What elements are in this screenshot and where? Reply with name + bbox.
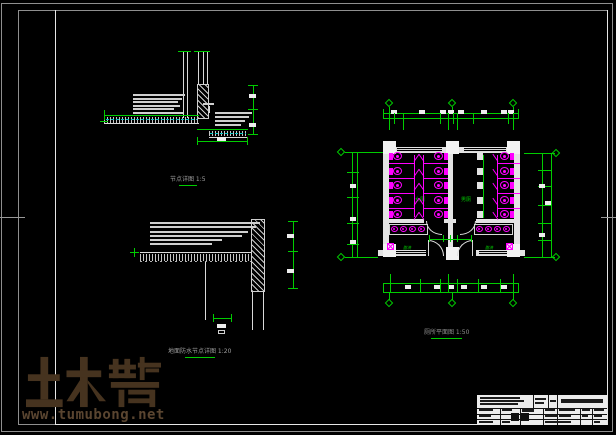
title-block-line bbox=[580, 408, 581, 425]
dim-text bbox=[501, 110, 507, 114]
dim-tick bbox=[347, 197, 359, 198]
dim-tick bbox=[518, 283, 519, 293]
d2-dim-line bbox=[213, 318, 232, 319]
wash-dim-tick bbox=[471, 235, 472, 242]
dim-tick bbox=[394, 113, 395, 124]
title-block-line bbox=[533, 395, 534, 408]
toilet-tank bbox=[444, 211, 448, 218]
tumubang-logo bbox=[26, 356, 161, 408]
urinal bbox=[477, 168, 483, 175]
title-block-text bbox=[502, 409, 512, 411]
title-underline bbox=[179, 185, 197, 186]
d1-leader bbox=[209, 106, 210, 113]
d1-dim-text bbox=[217, 137, 226, 141]
dim-text bbox=[501, 285, 507, 289]
title-block-text bbox=[479, 421, 493, 423]
dim-tick bbox=[518, 109, 519, 119]
title-block-line bbox=[500, 408, 501, 425]
toilet-bowl-dot bbox=[503, 199, 506, 202]
wash-dim-tick bbox=[443, 235, 444, 242]
stall-partition bbox=[423, 178, 448, 179]
d2-dim-tick bbox=[231, 314, 232, 322]
d2-dim-text bbox=[287, 269, 294, 273]
detail1-title: 节点详图 1:5 bbox=[170, 176, 206, 183]
dim-tick bbox=[513, 113, 514, 130]
title-block-line bbox=[557, 395, 558, 408]
d1-dim-line bbox=[253, 85, 254, 135]
dim-text bbox=[458, 110, 464, 114]
title-block-text bbox=[559, 421, 571, 423]
d1-wall-line bbox=[207, 52, 208, 85]
dim-stem bbox=[345, 152, 352, 153]
dim-tick bbox=[383, 283, 384, 293]
title-block-line bbox=[592, 408, 593, 425]
toilet-bowl-dot bbox=[396, 213, 399, 216]
sink-drain-dot bbox=[420, 228, 422, 230]
d1-tick bbox=[104, 110, 105, 120]
dim-tick bbox=[538, 223, 552, 224]
d1-tick bbox=[178, 51, 191, 52]
dim-tick bbox=[389, 113, 390, 130]
title-block-text bbox=[594, 415, 602, 417]
title-block-line bbox=[548, 395, 549, 408]
title-block-text bbox=[545, 415, 557, 417]
title-block-text bbox=[480, 403, 518, 405]
urinal bbox=[477, 211, 483, 218]
d2-wall-hatch bbox=[251, 219, 265, 292]
sink-drain-dot bbox=[487, 228, 489, 230]
d2-note-line bbox=[150, 235, 242, 237]
urinal bbox=[477, 153, 483, 160]
title-block-text bbox=[582, 409, 590, 411]
d1-note-line bbox=[133, 94, 185, 96]
toilet-tank bbox=[444, 153, 448, 160]
title-block-line bbox=[477, 419, 607, 420]
dim-text bbox=[461, 285, 467, 289]
title-block-text bbox=[594, 409, 604, 411]
floor-drain bbox=[387, 243, 394, 250]
dim-tick bbox=[440, 113, 441, 124]
dim-tick bbox=[448, 274, 449, 292]
title-block-text bbox=[550, 400, 556, 402]
toilet-bowl-dot bbox=[437, 155, 440, 158]
d1-lower-floor-bottom bbox=[209, 137, 247, 138]
d1-dim-tick bbox=[247, 137, 248, 145]
toilet-tank bbox=[444, 168, 448, 175]
dim-text bbox=[350, 217, 356, 221]
watermark: www.tumubong.net bbox=[0, 336, 200, 431]
toilet-bowl-dot bbox=[437, 170, 440, 173]
dim-tick bbox=[538, 170, 552, 171]
d1-note-line bbox=[215, 112, 252, 114]
d2-dim-line bbox=[293, 221, 294, 289]
dim-tick bbox=[508, 113, 509, 124]
d1-note-line bbox=[215, 124, 241, 126]
d2-wall-line bbox=[252, 292, 253, 330]
watermark-url: www.tumubong.net bbox=[22, 407, 165, 423]
floor-drain bbox=[506, 243, 513, 250]
title-block-text bbox=[594, 421, 600, 423]
plan-window-line bbox=[464, 149, 506, 150]
dim-tick bbox=[347, 244, 359, 245]
toilet-bowl-dot bbox=[437, 199, 440, 202]
dim-line bbox=[383, 292, 519, 293]
plan-window-line bbox=[396, 254, 426, 255]
stall-partition bbox=[423, 163, 448, 164]
d2-note-line bbox=[150, 243, 212, 245]
dim-tick bbox=[457, 279, 458, 292]
d2-note-line bbox=[150, 231, 248, 233]
plan-window-line bbox=[464, 151, 506, 152]
d1-wall-line bbox=[183, 52, 184, 118]
d2-floor-top-line bbox=[140, 252, 252, 253]
dim-text bbox=[539, 184, 545, 188]
d2-note-line bbox=[150, 222, 260, 224]
dim-tick bbox=[390, 274, 391, 292]
toilet-tank bbox=[444, 197, 448, 204]
d1-note-line bbox=[133, 105, 180, 107]
d2-note-line bbox=[150, 226, 256, 228]
dim-text bbox=[545, 201, 551, 205]
d1-note-line bbox=[133, 101, 178, 103]
d2-dim-tick bbox=[288, 288, 298, 289]
stall-partition bbox=[389, 163, 414, 164]
stall-partition bbox=[389, 178, 414, 179]
toilet-bowl-dot bbox=[396, 170, 399, 173]
title-block-text bbox=[535, 402, 544, 404]
door-leaf bbox=[428, 240, 429, 256]
cad-drawing-canvas: 节点详图 1:5 地面防水节点详图 1:20 厕所平面图 1:50 女厕 男厕 … bbox=[0, 0, 616, 435]
d1-dim-tick bbox=[197, 137, 198, 145]
dim-text bbox=[539, 233, 545, 237]
d2-note-line bbox=[150, 239, 222, 241]
title-block-text bbox=[479, 415, 491, 417]
centering-mark-right bbox=[601, 217, 616, 218]
dim-text bbox=[481, 285, 487, 289]
d2-symbol bbox=[218, 330, 225, 334]
d1-dim-tick bbox=[248, 109, 258, 110]
title-block-text bbox=[561, 399, 603, 403]
dim-tick bbox=[457, 113, 458, 130]
toilet-bowl-dot bbox=[503, 155, 506, 158]
d1-note-line bbox=[133, 98, 182, 100]
dim-tick bbox=[347, 223, 359, 224]
d1-wall-line bbox=[187, 52, 188, 118]
sink-drain-dot bbox=[505, 228, 507, 230]
title-block-stamp bbox=[521, 413, 529, 421]
dim-tick bbox=[500, 279, 501, 292]
title-block-text bbox=[502, 421, 510, 423]
d1-note-line bbox=[215, 116, 249, 118]
dim-tick bbox=[524, 257, 555, 258]
dim-text bbox=[350, 240, 356, 244]
sink-drain-dot bbox=[402, 228, 404, 230]
dim-tick bbox=[478, 279, 479, 292]
title-underline bbox=[431, 338, 462, 339]
toilet-bowl-dot bbox=[437, 184, 440, 187]
dim-tick bbox=[453, 113, 454, 124]
plan-window-line bbox=[479, 254, 509, 255]
stall-partition bbox=[497, 208, 520, 209]
dim-tick bbox=[524, 153, 555, 154]
toilet-bowl-dot bbox=[503, 184, 506, 187]
dim-stem bbox=[345, 257, 352, 258]
sink-drain-dot bbox=[393, 228, 395, 230]
title-block-text bbox=[522, 409, 534, 412]
d1-dim-text bbox=[249, 123, 256, 127]
dim-tick bbox=[473, 113, 474, 124]
d1-tick bbox=[100, 121, 108, 122]
d2-floor-broken-edge bbox=[140, 261, 252, 262]
d2-wall-line bbox=[263, 292, 264, 330]
urinal-screen-line bbox=[483, 155, 484, 218]
dim-text bbox=[419, 110, 425, 114]
dim-line bbox=[357, 152, 358, 258]
d1-wall-line bbox=[198, 52, 199, 85]
d1-note-line bbox=[133, 108, 174, 110]
title-block-text bbox=[559, 415, 571, 417]
title-block-text bbox=[559, 409, 575, 411]
dim-tick bbox=[513, 274, 514, 292]
title-block-text bbox=[545, 421, 559, 423]
d2-extension-line bbox=[205, 262, 206, 320]
d1-dim-tick bbox=[248, 85, 258, 86]
d2-dim-tick bbox=[213, 314, 214, 322]
dim-line bbox=[383, 283, 519, 284]
stall-partition bbox=[389, 208, 414, 209]
plan-window-line bbox=[396, 252, 426, 253]
d1-waterproof-line bbox=[210, 133, 246, 134]
d1-note-line bbox=[203, 103, 214, 105]
stall-partition bbox=[497, 163, 520, 164]
d1-dim-tick bbox=[248, 134, 258, 135]
wash-dim-tick bbox=[429, 235, 430, 242]
d1-waterproof-line bbox=[106, 119, 197, 120]
room-label-right: 男厕 bbox=[461, 198, 471, 203]
dim-tick bbox=[383, 109, 384, 119]
dim-tick bbox=[420, 279, 421, 292]
toilet-bowl-dot bbox=[396, 184, 399, 187]
d1-lower-floor-line bbox=[197, 129, 248, 130]
d2-tick bbox=[134, 248, 135, 257]
d1-floor-bottom-line bbox=[104, 123, 199, 124]
toilet-tank bbox=[510, 211, 514, 218]
toilet-tank bbox=[510, 197, 514, 204]
d1-dim-line bbox=[197, 141, 248, 142]
centering-mark-left bbox=[0, 217, 25, 218]
stall-partition bbox=[497, 193, 520, 194]
sink-drain-dot bbox=[478, 228, 480, 230]
dim-tick bbox=[448, 113, 449, 130]
urinal bbox=[477, 182, 483, 189]
toilet-bowl-dot bbox=[503, 170, 506, 173]
toilet-tank bbox=[510, 182, 514, 189]
dim-tick bbox=[403, 113, 404, 130]
d2-floor-hatch bbox=[140, 254, 252, 261]
toilet-bowl-dot bbox=[396, 199, 399, 202]
plan-window-line bbox=[479, 252, 509, 253]
d2-dim-tick bbox=[288, 251, 298, 252]
sink-drain-dot bbox=[496, 228, 498, 230]
title-block-line bbox=[543, 408, 544, 425]
stall-partition bbox=[497, 178, 520, 179]
stall-partition bbox=[423, 193, 448, 194]
dim-text bbox=[481, 110, 487, 114]
d1-wall-hatch bbox=[197, 84, 209, 119]
urinal bbox=[477, 197, 483, 204]
d2-dim-tick bbox=[288, 221, 298, 222]
sink-drain-dot bbox=[411, 228, 413, 230]
toilet-bowl-dot bbox=[396, 155, 399, 158]
dim-tick bbox=[538, 240, 552, 241]
toilet-bowl-dot bbox=[437, 213, 440, 216]
title-block-text bbox=[582, 415, 588, 417]
title-block-text bbox=[480, 397, 520, 399]
d1-floor-top-line bbox=[104, 115, 199, 116]
dim-text bbox=[405, 285, 411, 289]
dim-tick bbox=[538, 205, 552, 206]
title-block-text bbox=[535, 398, 546, 400]
dim-text bbox=[350, 184, 356, 188]
wash-dim-tick bbox=[457, 235, 458, 242]
dim-tick bbox=[440, 279, 441, 292]
stall-partition bbox=[389, 193, 414, 194]
d1-note-line bbox=[215, 120, 245, 122]
d1-note-line bbox=[133, 112, 183, 114]
stall-partition bbox=[423, 208, 448, 209]
d2-dim-text bbox=[217, 324, 226, 328]
toilet-tank bbox=[510, 168, 514, 175]
title-block-text bbox=[479, 409, 493, 411]
wash-dim-tick bbox=[450, 235, 451, 242]
dim-tick bbox=[347, 172, 359, 173]
title-block-stamp bbox=[511, 413, 519, 421]
title-block-text bbox=[545, 409, 555, 411]
door-leaf bbox=[472, 240, 473, 256]
d2-dim-text bbox=[287, 234, 294, 238]
toilet-tank bbox=[510, 153, 514, 160]
d1-wall-line bbox=[203, 52, 204, 85]
toilet-bowl-dot bbox=[503, 213, 506, 216]
d1-dim-text bbox=[249, 94, 256, 98]
plan-window-line bbox=[397, 149, 442, 150]
plan-title: 厕所平面图 1:50 bbox=[424, 329, 469, 336]
title-block-text bbox=[480, 400, 524, 402]
toilet-tank bbox=[444, 182, 448, 189]
